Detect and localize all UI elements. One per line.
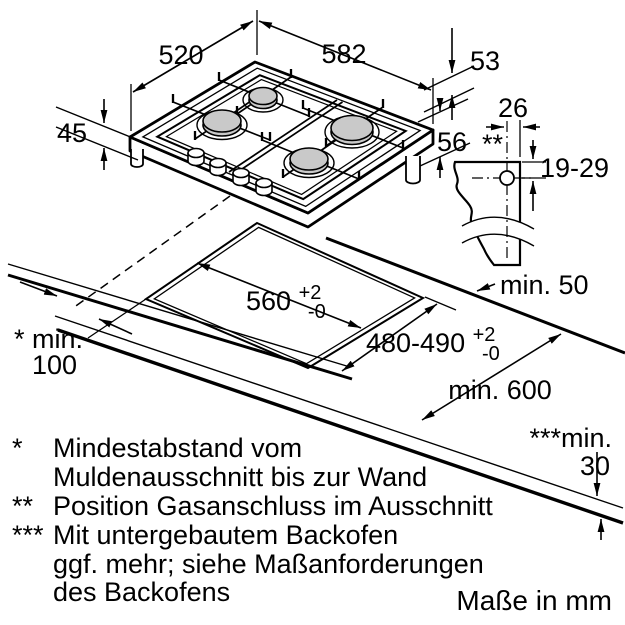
burner-left — [197, 110, 247, 140]
dim-480-490-label: 480-490 +2 -0 — [366, 317, 503, 365]
dim-26-label: 26 — [498, 93, 528, 123]
knob-4-top — [256, 179, 272, 188]
knob-1-top — [188, 149, 204, 158]
footnote-line-6: des Backofens — [53, 577, 230, 607]
dim-480-490-tol-minus: -0 — [482, 343, 500, 365]
dim-560-value: 560 — [246, 286, 291, 316]
installation-diagram-page: 520 582 53 45 56 ** 26 19-29 560 +2 -0 4… — [0, 0, 625, 625]
burner-back-cap — [249, 88, 277, 105]
dim-45-label: 45 — [57, 118, 87, 148]
dim-560-tol-minus: -0 — [308, 301, 326, 323]
footnotes: * Mindestabstand vom Muldenausschnitt bi… — [12, 433, 612, 616]
footnote-line-5: ggf. mehr; siehe Maßanforderungen — [53, 549, 484, 579]
dim-min50-arrow — [477, 284, 495, 291]
burner-front — [284, 148, 334, 178]
dim-min600-label: min. 600 — [448, 375, 552, 405]
dim-19-29-label: 19-29 — [540, 153, 609, 183]
burner-left-cap — [203, 110, 241, 132]
knob-3-top — [233, 169, 249, 178]
hob-drawing — [130, 62, 433, 227]
dim-56-label: 56 — [437, 127, 467, 157]
burner-right-cap — [331, 116, 373, 141]
footnote-marker-2: ** — [12, 491, 34, 521]
hob-foot-right — [406, 156, 420, 184]
gas-connection-mark: ** — [482, 129, 504, 159]
ext-lines-53 — [424, 66, 474, 112]
cutout-right-corner-extension — [425, 297, 456, 310]
dim-min30-label-line2: 30 — [580, 451, 610, 481]
footnote-marker-3: *** — [12, 520, 44, 550]
footnote-line-2: Muldenausschnitt bis zur Wand — [53, 462, 427, 492]
dim-min100-label-line2: 100 — [32, 350, 77, 380]
footnote-line-4: Mit untergebautem Backofen — [53, 520, 398, 550]
burner-right — [325, 116, 379, 149]
dim-520-label: 520 — [158, 40, 203, 70]
dim-53-label: 53 — [470, 46, 500, 76]
burner-front-cap — [290, 148, 328, 170]
gas-connection-hole — [500, 171, 514, 185]
burner-back — [243, 88, 283, 113]
footnote-line-3: Position Gasanschluss im Ausschnitt — [53, 491, 493, 521]
footnote-line-1: Mindestabstand vom — [53, 433, 302, 463]
dim-560-label: 560 +2 -0 — [246, 275, 329, 323]
cutout-left-corner-extension — [88, 299, 146, 338]
footnote-marker-1: * — [12, 433, 23, 463]
hob-installation-diagram: 520 582 53 45 56 ** 26 19-29 560 +2 -0 4… — [0, 0, 625, 625]
dim-480-490-value: 480-490 — [366, 328, 465, 358]
dim-582-label: 582 — [321, 39, 366, 69]
dim-min50-label: min. 50 — [500, 270, 589, 300]
dim-min30-label-line1: ***min. — [529, 423, 612, 453]
units-note: Maße in mm — [456, 585, 612, 616]
knob-2-top — [210, 159, 226, 168]
